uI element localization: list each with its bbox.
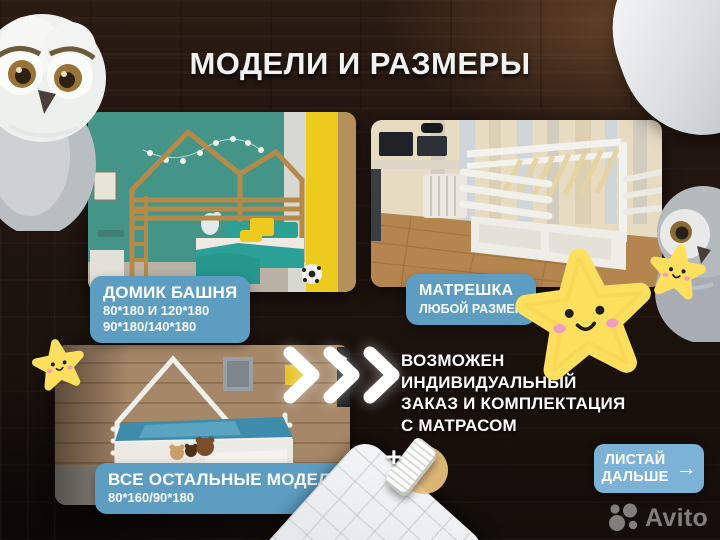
house-bunk-bed-illustration <box>88 112 356 292</box>
card-sizes-line1: ЛЮБОЙ РАЗМЕР <box>419 301 523 317</box>
card-title: ДОМИК БАШНЯ <box>103 283 237 303</box>
card-sizes-line1: 80*180 И 120*180 <box>103 303 237 319</box>
promo-line: ЗАКАЗ И КОМПЛЕКТАЦИЯ <box>401 393 625 415</box>
card-sizes-line2: 90*180/140*180 <box>103 319 237 335</box>
listing-promo-image: МОДЕЛИ И РАЗМЕРЫ <box>0 0 720 540</box>
star-character-small <box>643 238 710 305</box>
star-character-small <box>28 334 91 397</box>
owl-plush <box>0 0 112 231</box>
card-label-domik-bashnya: ДОМИК БАШНЯ 80*180 И 120*180 90*180/140*… <box>90 276 250 343</box>
next-slide-line2: ДАЛЬШЕ <box>601 469 668 485</box>
chevron-right-icons[interactable] <box>280 344 404 408</box>
next-slide-label: ЛИСТАЙ ДАЛЬШЕ <box>601 452 668 486</box>
promo-line: С МАТРАСОМ <box>401 415 625 437</box>
card-title: ВСЕ ОСТАЛЬНЫЕ МОДЕЛИ <box>108 470 343 490</box>
avito-watermark: Avito <box>606 501 708 535</box>
avito-watermark-label: Avito <box>645 504 708 533</box>
photo-domik-bashnya <box>88 112 356 292</box>
arrow-right-icon: → <box>676 459 697 479</box>
next-slide-button[interactable]: ЛИСТАЙ ДАЛЬШЕ → <box>594 444 704 493</box>
avito-logo-icon <box>606 501 642 535</box>
plus-icon: + <box>386 442 402 473</box>
star-character <box>505 239 665 393</box>
next-slide-line1: ЛИСТАЙ <box>605 452 666 468</box>
